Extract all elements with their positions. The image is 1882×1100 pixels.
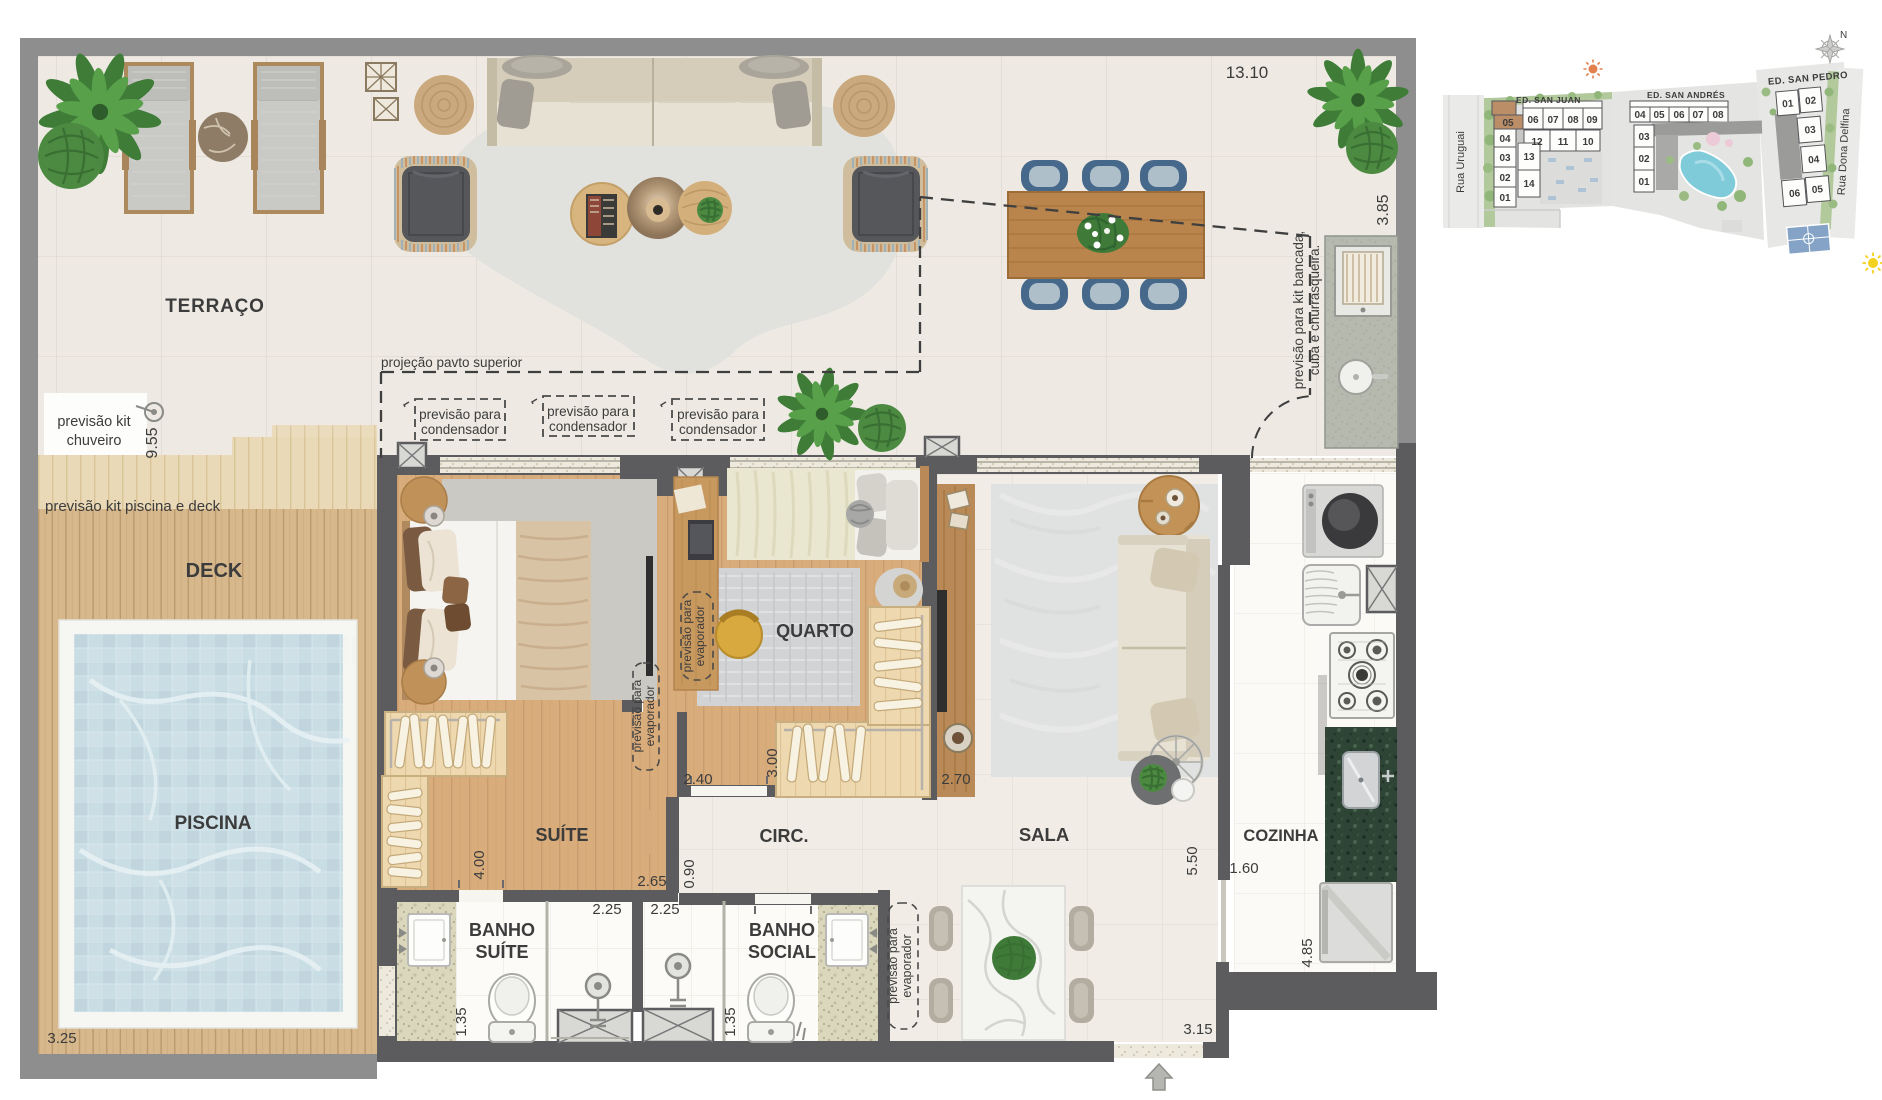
svg-text:SOCIAL: SOCIAL bbox=[748, 942, 816, 962]
svg-text:10: 10 bbox=[1582, 137, 1594, 148]
svg-text:01: 01 bbox=[1782, 98, 1794, 110]
svg-text:projeção pavto superior: projeção pavto superior bbox=[381, 355, 523, 370]
svg-text:ED. SAN JUAN: ED. SAN JUAN bbox=[1516, 95, 1581, 105]
svg-text:05: 05 bbox=[1811, 184, 1823, 196]
svg-text:SUÍTE: SUÍTE bbox=[475, 941, 528, 962]
svg-text:evaporador: evaporador bbox=[900, 934, 914, 997]
svg-text:previsão para: previsão para bbox=[630, 679, 644, 752]
svg-text:13.10: 13.10 bbox=[1226, 63, 1269, 82]
svg-text:2.70: 2.70 bbox=[941, 771, 970, 788]
svg-text:previsão kit: previsão kit bbox=[57, 414, 130, 430]
svg-text:TERRAÇO: TERRAÇO bbox=[165, 296, 265, 317]
svg-text:9.55: 9.55 bbox=[144, 427, 161, 458]
svg-text:SALA: SALA bbox=[1019, 824, 1069, 845]
svg-text:COZINHA: COZINHA bbox=[1243, 827, 1318, 845]
svg-text:06: 06 bbox=[1673, 110, 1685, 121]
svg-text:11: 11 bbox=[1558, 137, 1569, 148]
svg-text:N: N bbox=[1840, 30, 1847, 41]
svg-text:previsão para kit bancada,: previsão para kit bancada, bbox=[1291, 231, 1306, 389]
svg-text:cuba e churrasqueira.: cuba e churrasqueira. bbox=[1307, 245, 1322, 376]
svg-text:previsão para: previsão para bbox=[680, 599, 694, 672]
svg-text:05: 05 bbox=[1502, 118, 1514, 129]
svg-text:02: 02 bbox=[1805, 95, 1817, 107]
svg-text:1.35: 1.35 bbox=[722, 1007, 739, 1036]
svg-text:5.50: 5.50 bbox=[1184, 846, 1201, 875]
svg-text:QUARTO: QUARTO bbox=[776, 621, 854, 641]
svg-text:BANHO: BANHO bbox=[749, 920, 815, 940]
svg-text:4.85: 4.85 bbox=[1299, 938, 1316, 967]
svg-text:ED. SAN ANDRÉS: ED. SAN ANDRÉS bbox=[1647, 90, 1725, 100]
svg-text:CIRC.: CIRC. bbox=[760, 826, 809, 846]
svg-text:12: 12 bbox=[1531, 137, 1543, 148]
svg-text:0.90: 0.90 bbox=[681, 859, 698, 888]
svg-text:BANHO: BANHO bbox=[469, 920, 535, 940]
svg-text:condensador: condensador bbox=[679, 422, 758, 437]
svg-text:1.60: 1.60 bbox=[1229, 860, 1258, 877]
svg-text:3.15: 3.15 bbox=[1183, 1021, 1212, 1038]
svg-text:09: 09 bbox=[1586, 115, 1598, 126]
svg-text:03: 03 bbox=[1638, 132, 1650, 143]
svg-text:08: 08 bbox=[1712, 110, 1724, 121]
svg-text:05: 05 bbox=[1653, 110, 1665, 121]
svg-text:1.35: 1.35 bbox=[453, 1007, 470, 1036]
svg-text:previsão para: previsão para bbox=[677, 407, 759, 422]
svg-text:3.25: 3.25 bbox=[47, 1030, 76, 1047]
svg-text:previsão kit piscina e deck: previsão kit piscina e deck bbox=[45, 498, 221, 515]
svg-text:04: 04 bbox=[1634, 110, 1646, 121]
svg-text:2.25: 2.25 bbox=[650, 901, 679, 918]
svg-text:01: 01 bbox=[1499, 193, 1511, 204]
svg-text:02: 02 bbox=[1499, 173, 1511, 184]
svg-text:07: 07 bbox=[1692, 110, 1704, 121]
svg-text:06: 06 bbox=[1527, 115, 1539, 126]
svg-text:02: 02 bbox=[1638, 154, 1650, 165]
svg-text:04: 04 bbox=[1808, 154, 1820, 166]
svg-text:previsão para: previsão para bbox=[419, 407, 501, 422]
svg-text:Rua Uruguai: Rua Uruguai bbox=[1455, 131, 1467, 193]
svg-text:03: 03 bbox=[1499, 153, 1511, 164]
svg-text:13: 13 bbox=[1523, 152, 1535, 163]
svg-text:SUÍTE: SUÍTE bbox=[535, 824, 588, 845]
svg-text:07: 07 bbox=[1547, 115, 1559, 126]
svg-text:2.65: 2.65 bbox=[637, 873, 666, 890]
svg-text:4.00: 4.00 bbox=[471, 850, 488, 879]
svg-text:chuveiro: chuveiro bbox=[67, 433, 122, 449]
svg-text:3.00: 3.00 bbox=[764, 748, 781, 777]
svg-text:PISCINA: PISCINA bbox=[174, 813, 251, 834]
svg-text:3.85: 3.85 bbox=[1375, 194, 1392, 225]
svg-text:condensador: condensador bbox=[549, 419, 628, 434]
svg-text:2.40: 2.40 bbox=[683, 771, 712, 788]
svg-text:previsão para: previsão para bbox=[547, 404, 629, 419]
svg-text:2.25: 2.25 bbox=[592, 901, 621, 918]
svg-text:08: 08 bbox=[1567, 115, 1579, 126]
svg-text:04: 04 bbox=[1499, 134, 1511, 145]
svg-text:previsão para: previsão para bbox=[886, 928, 900, 1004]
svg-text:03: 03 bbox=[1804, 125, 1816, 137]
svg-text:14: 14 bbox=[1523, 179, 1535, 190]
svg-text:evaporador: evaporador bbox=[643, 686, 657, 747]
svg-text:06: 06 bbox=[1789, 188, 1801, 200]
svg-text:evaporador: evaporador bbox=[693, 606, 707, 667]
svg-text:DECK: DECK bbox=[186, 560, 243, 582]
svg-text:condensador: condensador bbox=[421, 422, 500, 437]
svg-text:01: 01 bbox=[1638, 177, 1650, 188]
